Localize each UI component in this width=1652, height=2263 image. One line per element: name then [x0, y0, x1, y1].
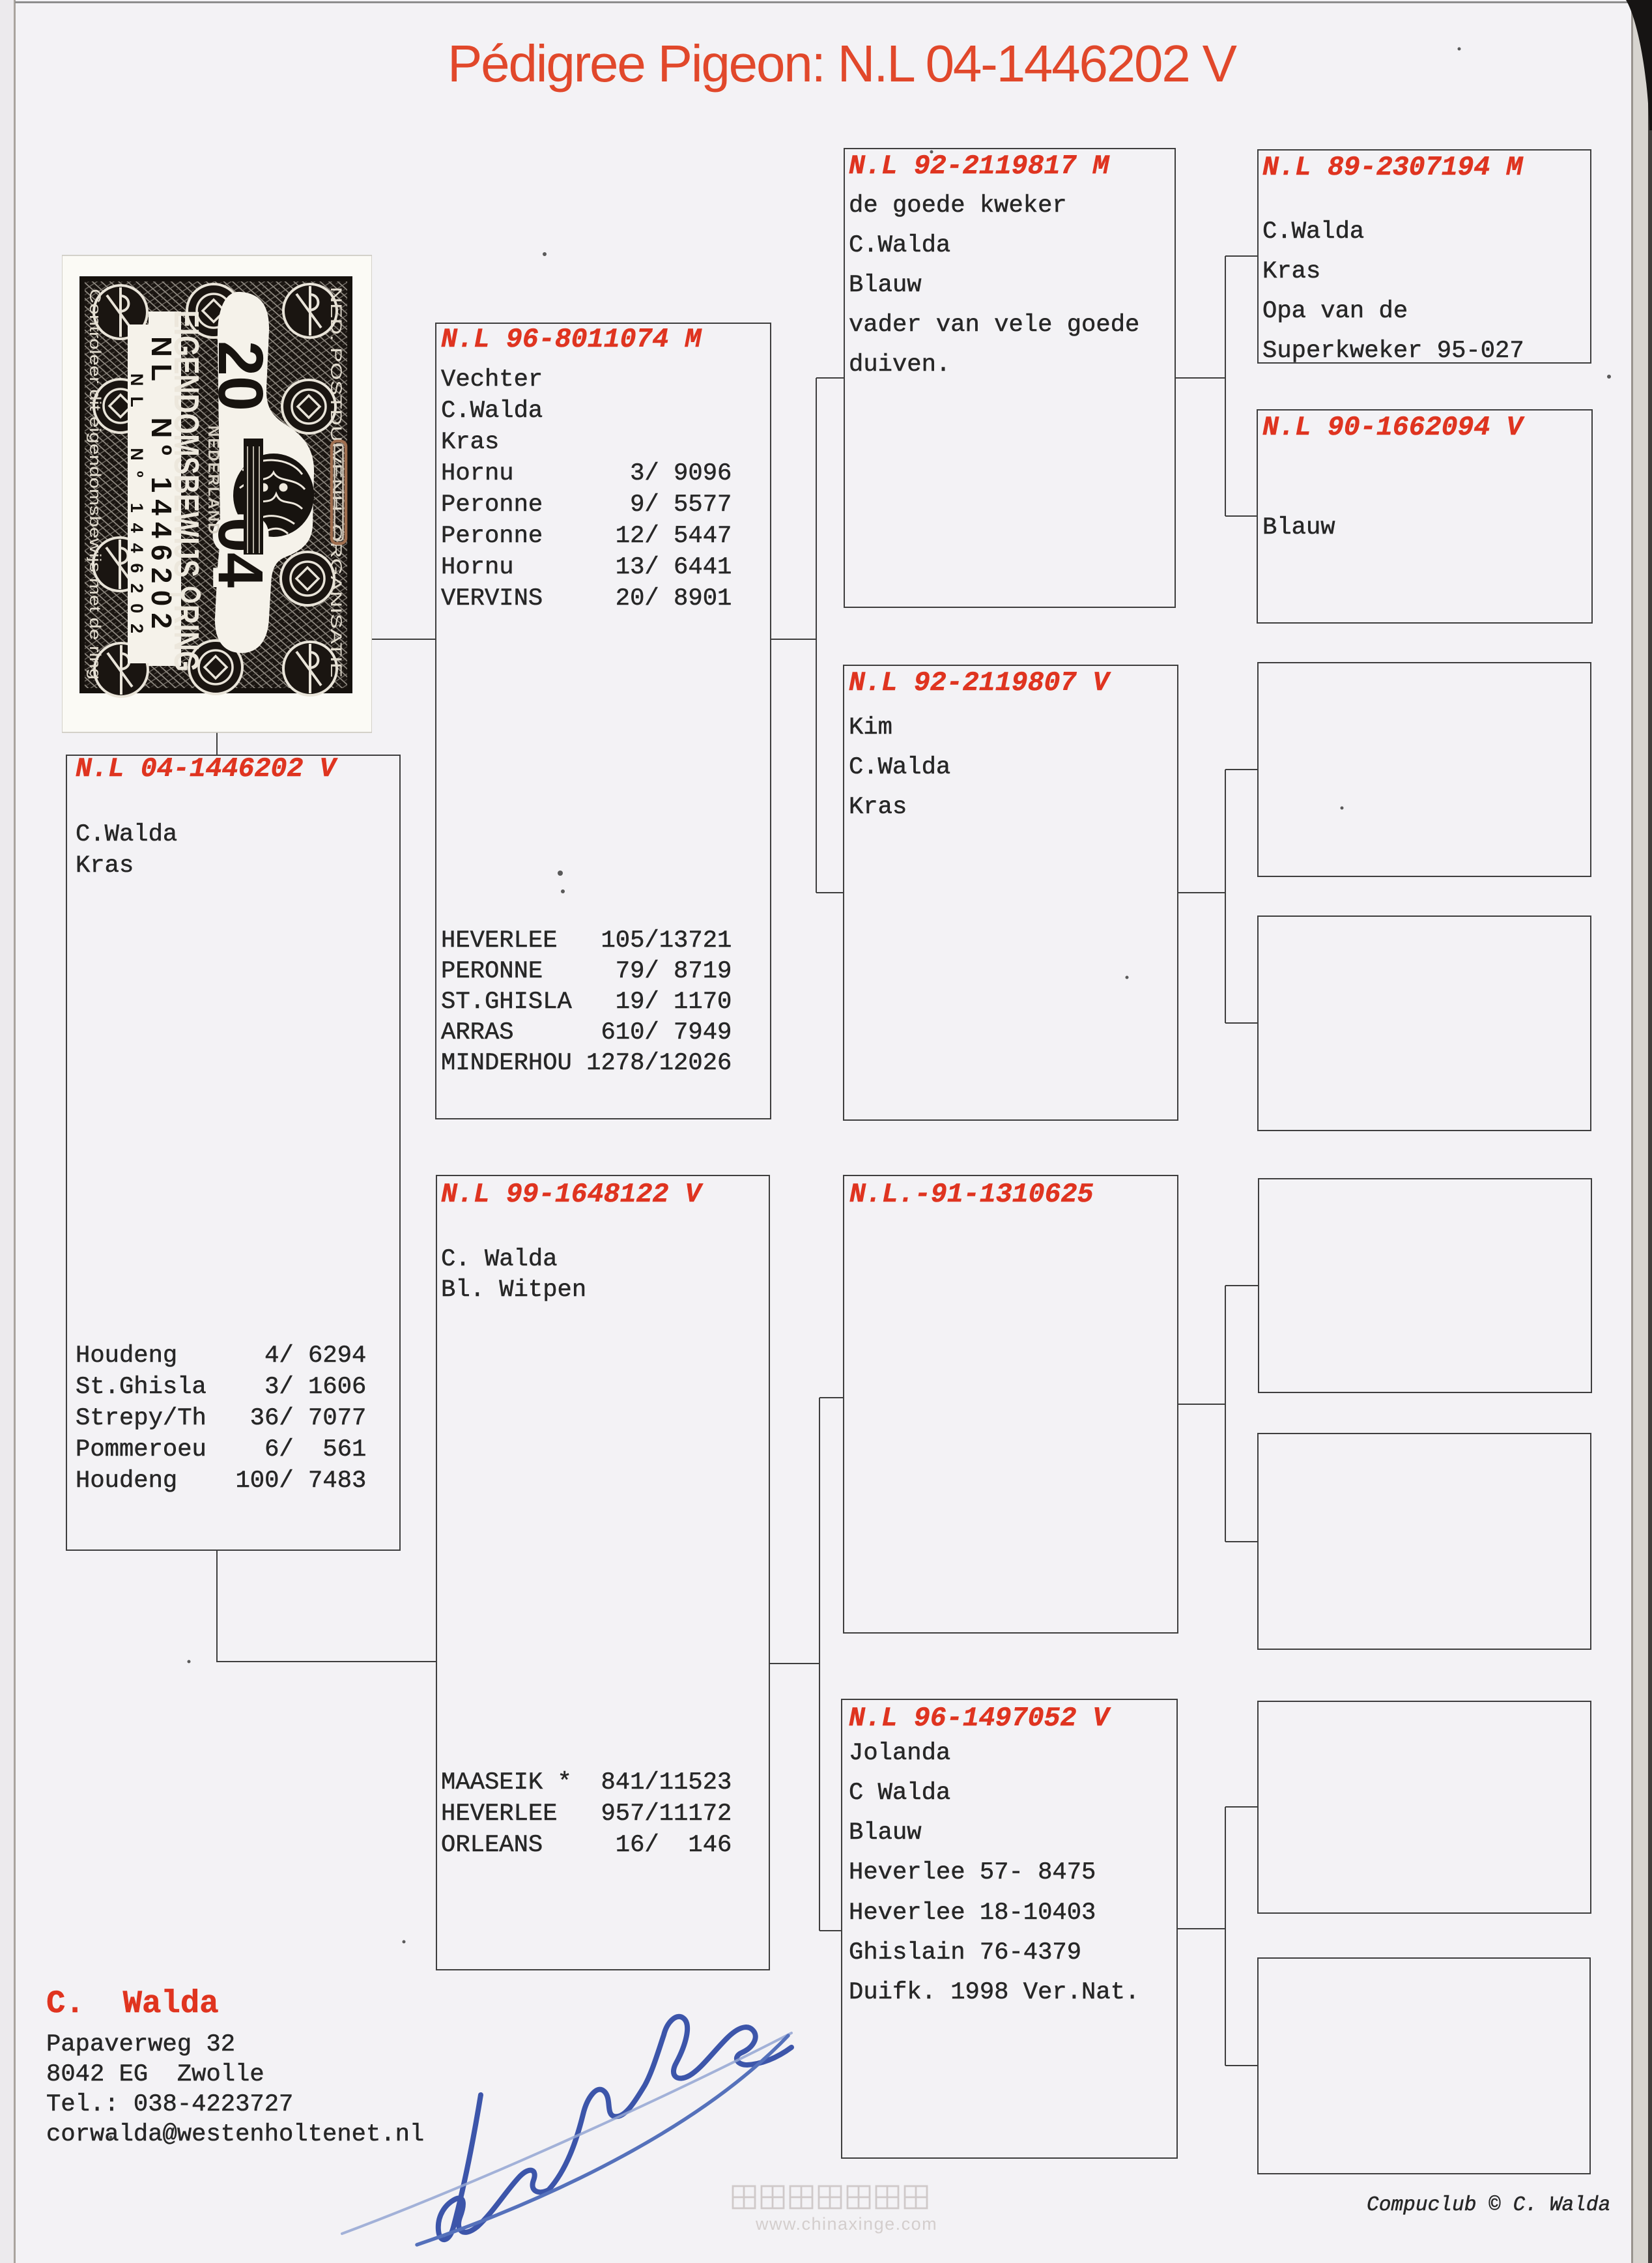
svg-text:NED. POSTDUIVENH. ORGANISATIE: NED. POSTDUIVENH. ORGANISATIE — [327, 287, 345, 678]
svg-text:20: 20 — [205, 341, 276, 411]
svg-text:NEDERLAND: NEDERLAND — [205, 425, 222, 536]
svg-text:EIGENDOMSBEWIJS ⚲RING: EIGENDOMSBEWIJS ⚲RING — [167, 310, 206, 672]
svg-text:Controleer dit eigendomsbewijs: Controleer dit eigendomsbewijs met de ri… — [86, 289, 104, 680]
